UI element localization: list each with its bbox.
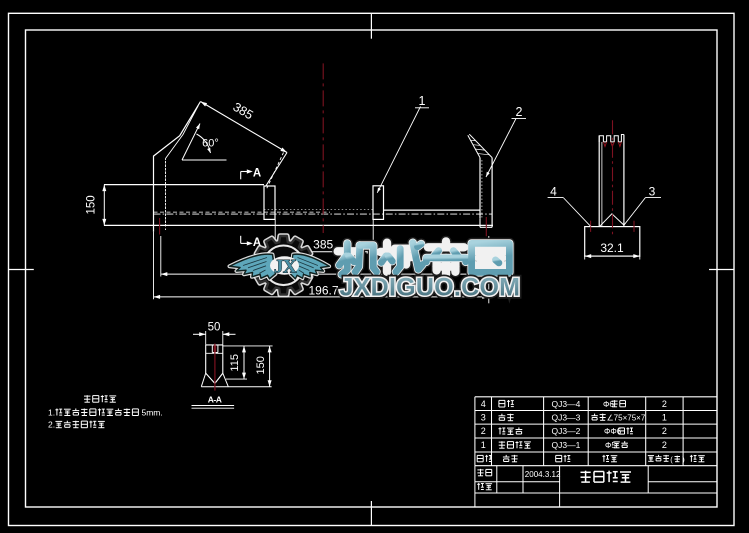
svg-text:2: 2 (662, 440, 667, 450)
svg-text:50: 50 (208, 322, 221, 334)
svg-text:5mm.: 5mm. (142, 407, 163, 417)
svg-text:1: 1 (481, 440, 486, 450)
svg-text:3: 3 (481, 413, 486, 423)
svg-text:QJ3—3: QJ3—3 (551, 413, 580, 423)
svg-text:150: 150 (255, 356, 267, 374)
svg-text:2.: 2. (48, 419, 55, 429)
svg-text:2: 2 (662, 426, 667, 436)
svg-text:4: 4 (550, 185, 557, 199)
svg-text:2: 2 (481, 426, 486, 436)
svg-text:150: 150 (86, 195, 98, 214)
svg-text:JXDIGUO.COM: JXDIGUO.COM (340, 274, 521, 302)
svg-text:1: 1 (419, 94, 426, 108)
svg-text:A-A: A-A (208, 395, 222, 405)
svg-text:32.1: 32.1 (600, 241, 624, 255)
svg-text:QJ3—2: QJ3—2 (551, 426, 580, 436)
svg-text:2: 2 (516, 105, 523, 119)
svg-text:115: 115 (229, 354, 241, 372)
svg-text:A: A (253, 168, 261, 180)
svg-text:QJ3—4: QJ3—4 (551, 399, 580, 409)
svg-text:1: 1 (662, 413, 667, 423)
svg-text:385: 385 (313, 237, 333, 251)
svg-text:QJ3—1: QJ3—1 (551, 440, 580, 450)
svg-text:196.7: 196.7 (308, 283, 338, 297)
svg-text:60°: 60° (202, 138, 219, 150)
svg-text:2: 2 (662, 399, 667, 409)
svg-text:4: 4 (481, 399, 486, 409)
svg-text:JX: JX (274, 257, 297, 278)
svg-text:∠75×75×7: ∠75×75×7 (607, 413, 646, 422)
svg-text:2004.3.12: 2004.3.12 (525, 470, 561, 479)
svg-text:3: 3 (649, 185, 656, 199)
svg-text:1.: 1. (48, 407, 55, 417)
